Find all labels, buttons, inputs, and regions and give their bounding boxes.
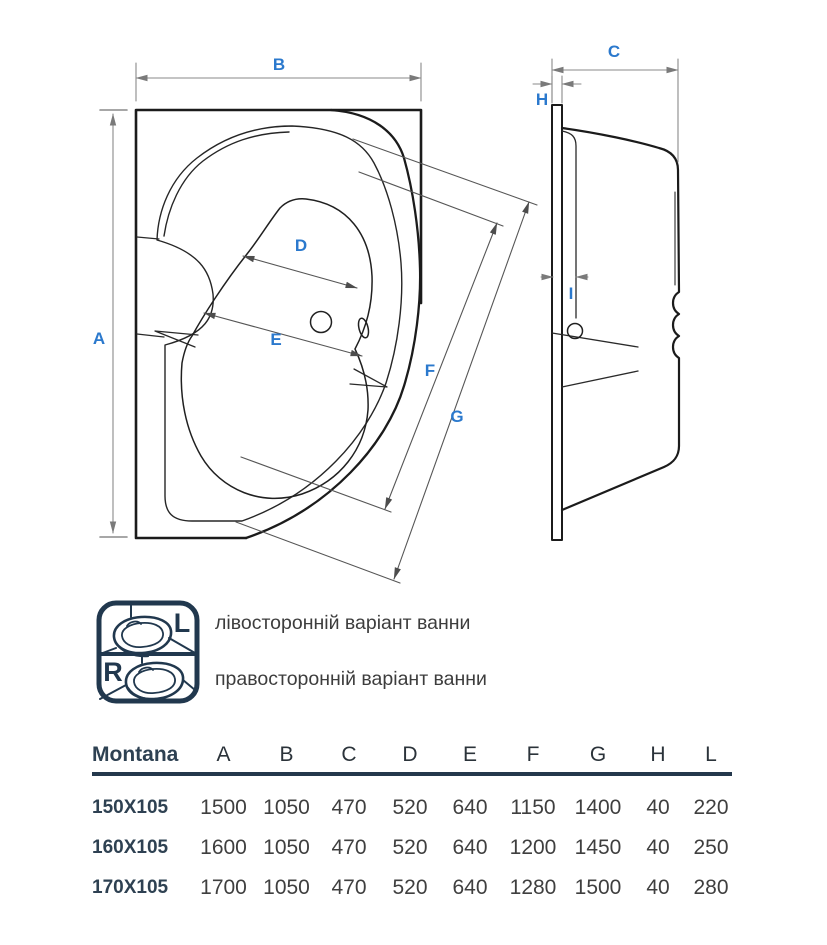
- cell-value: 470: [318, 836, 380, 860]
- dim-ext-f-bottom: [241, 457, 391, 512]
- cell-value: 40: [630, 876, 686, 900]
- cell-value: 1050: [255, 836, 318, 860]
- cell-value: 1700: [192, 876, 255, 900]
- dim-label-i: I: [569, 284, 574, 303]
- plan-view: A B D E F G: [93, 55, 537, 583]
- cell-value: 640: [440, 836, 500, 860]
- col-header-e: E: [440, 743, 500, 767]
- bathtub-spec-sheet: A B D E F G C H: [0, 0, 827, 945]
- col-header-h: H: [630, 743, 686, 767]
- tub-outer-rim: [246, 110, 420, 538]
- cell-value: 40: [630, 836, 686, 860]
- dim-label-d: D: [295, 236, 307, 255]
- dim-label-g: G: [450, 407, 463, 426]
- dim-line-e: [204, 313, 362, 356]
- dim-label-b: B: [273, 55, 285, 74]
- cell-value: 520: [380, 836, 440, 860]
- dim-line-d: [243, 256, 357, 288]
- legend-left-variant-label: лівосторонній варіант ванни: [215, 612, 470, 635]
- badge-letter-l: L: [174, 608, 191, 638]
- dim-line-g: [394, 202, 529, 579]
- badge-letter-r: R: [103, 657, 123, 687]
- cell-value: 520: [380, 796, 440, 820]
- wall-panel: [552, 105, 562, 540]
- cell-value: 1400: [566, 796, 630, 820]
- dim-ext-g-top: [353, 139, 537, 205]
- dim-label-c: C: [608, 42, 620, 61]
- dim-label-f: F: [425, 361, 435, 380]
- cell-value: 220: [686, 796, 736, 820]
- table-brand: Montana: [92, 743, 192, 767]
- cell-value: 1150: [500, 796, 566, 820]
- cell-value: 1200: [500, 836, 566, 860]
- orientation-badge: L R: [96, 600, 200, 704]
- side-view: C H I: [533, 42, 679, 540]
- cell-value: 1050: [255, 796, 318, 820]
- cell-value: 250: [686, 836, 736, 860]
- row-size-label: 150X105: [92, 797, 192, 819]
- row-size-label: 160X105: [92, 837, 192, 859]
- dim-label-e: E: [270, 330, 281, 349]
- cell-value: 1280: [500, 876, 566, 900]
- dim-ext-f-top: [359, 172, 503, 226]
- col-header-b: B: [255, 743, 318, 767]
- wall-connector-lines: [137, 237, 164, 337]
- col-header-d: D: [380, 743, 440, 767]
- dim-ext-g-bottom: [236, 522, 400, 583]
- table-row: 150X105 1500 1050 470 520 640 1150 1400 …: [92, 788, 752, 828]
- col-header-a: A: [192, 743, 255, 767]
- dim-ext-h: [552, 76, 562, 103]
- rim-cusp-right: [350, 369, 387, 387]
- cell-value: 1450: [566, 836, 630, 860]
- cell-value: 640: [440, 876, 500, 900]
- technical-drawing: A B D E F G C H: [0, 0, 827, 595]
- cell-value: 1050: [255, 876, 318, 900]
- rim-cusp-left: [155, 331, 198, 347]
- col-header-g: G: [566, 743, 630, 767]
- cell-value: 520: [380, 876, 440, 900]
- drain-icon: [311, 312, 332, 333]
- dim-ext-c: [552, 59, 678, 162]
- cell-value: 470: [318, 876, 380, 900]
- table-row: 160X105 1600 1050 470 520 640 1200 1450 …: [92, 828, 752, 868]
- cell-value: 470: [318, 796, 380, 820]
- col-header-c: C: [318, 743, 380, 767]
- dim-label-h: H: [536, 90, 548, 109]
- table-header-row: Montana A B C D E F G H L: [92, 742, 752, 768]
- cell-value: 1600: [192, 836, 255, 860]
- cell-value: 640: [440, 796, 500, 820]
- row-size-label: 170X105: [92, 877, 192, 899]
- cell-value: 40: [630, 796, 686, 820]
- dim-label-a: A: [93, 329, 105, 348]
- col-header-f: F: [500, 743, 566, 767]
- wall-outline: [136, 110, 421, 538]
- table-row: 170X105 1700 1050 470 520 640 1280 1500 …: [92, 868, 752, 908]
- tub-profile: [562, 128, 679, 510]
- cell-value: 1500: [192, 796, 255, 820]
- cell-value: 1500: [566, 876, 630, 900]
- table-header-rule: [92, 772, 732, 776]
- dimensions-table: Montana A B C D E F G H L 150X105 1500 1…: [92, 742, 752, 908]
- col-header-l: L: [686, 743, 736, 767]
- seat-contour-lines: [552, 333, 638, 387]
- plan-dim-lines-gray: [100, 63, 421, 537]
- cell-value: 280: [686, 876, 736, 900]
- table-body: 150X105 1500 1050 470 520 640 1150 1400 …: [92, 788, 752, 908]
- legend-right-variant-label: правосторонній варіант ванни: [215, 668, 487, 691]
